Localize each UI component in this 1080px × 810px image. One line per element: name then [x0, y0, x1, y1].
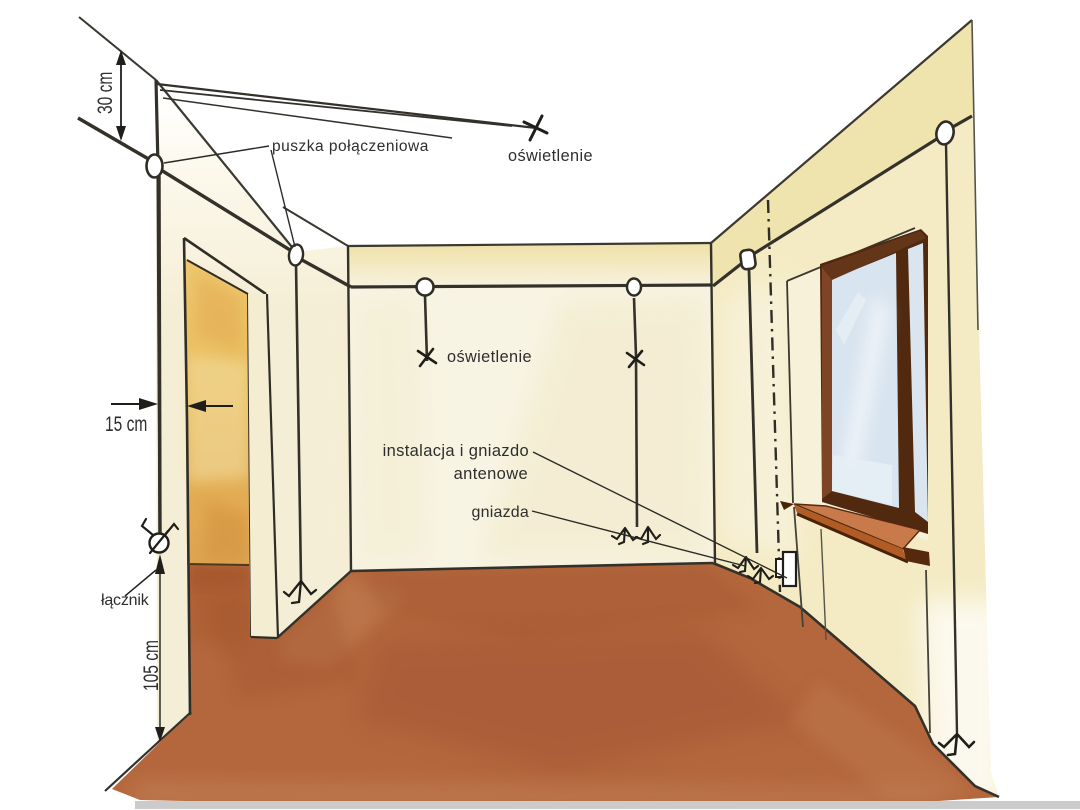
- svg-text:30 cm: 30 cm: [93, 72, 117, 114]
- svg-text:gniazda: gniazda: [472, 504, 529, 521]
- svg-text:puszka połączeniowa: puszka połączeniowa: [272, 138, 429, 155]
- svg-text:oświetlenie: oświetlenie: [508, 147, 593, 165]
- svg-text:instalacja i gniazdo: instalacja i gniazdo: [383, 442, 529, 460]
- svg-text:105 cm: 105 cm: [139, 640, 163, 691]
- svg-text:oświetlenie: oświetlenie: [447, 348, 532, 366]
- svg-text:15 cm: 15 cm: [105, 412, 147, 436]
- svg-text:łącznik: łącznik: [101, 592, 150, 609]
- svg-text:antenowe: antenowe: [454, 465, 528, 483]
